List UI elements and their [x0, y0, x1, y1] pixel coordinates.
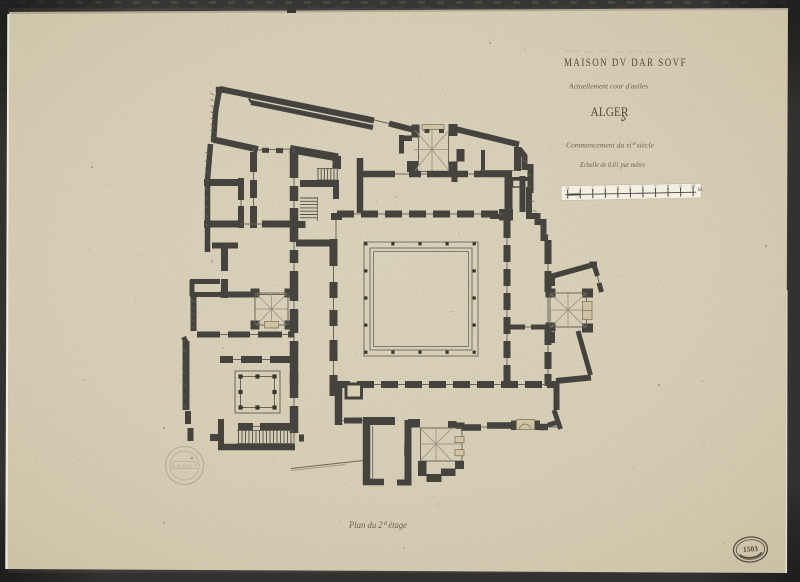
svg-text:ALGER: ALGER	[591, 104, 629, 119]
svg-text:MAISON DV DAR SOVF: MAISON DV DAR SOVF	[564, 55, 687, 69]
svg-text:Actuellement cour d'asiles: Actuellement cour d'asiles	[568, 82, 648, 91]
svg-text:1: 1	[579, 186, 581, 191]
svg-text:1503: 1503	[743, 544, 759, 554]
svg-text:Commencement du xi⁰ siècle: Commencement du xi⁰ siècle	[566, 141, 655, 150]
svg-text:N 1503: N 1503	[177, 464, 192, 469]
svg-text:2: 2	[591, 185, 593, 190]
svg-text:Echelle de 0,01 par mètre: Echelle de 0,01 par mètre	[579, 160, 645, 169]
svg-text:M.: M.	[698, 188, 704, 193]
svg-text:Plan du 2⁰ étage: Plan du 2⁰ étage	[348, 520, 407, 530]
